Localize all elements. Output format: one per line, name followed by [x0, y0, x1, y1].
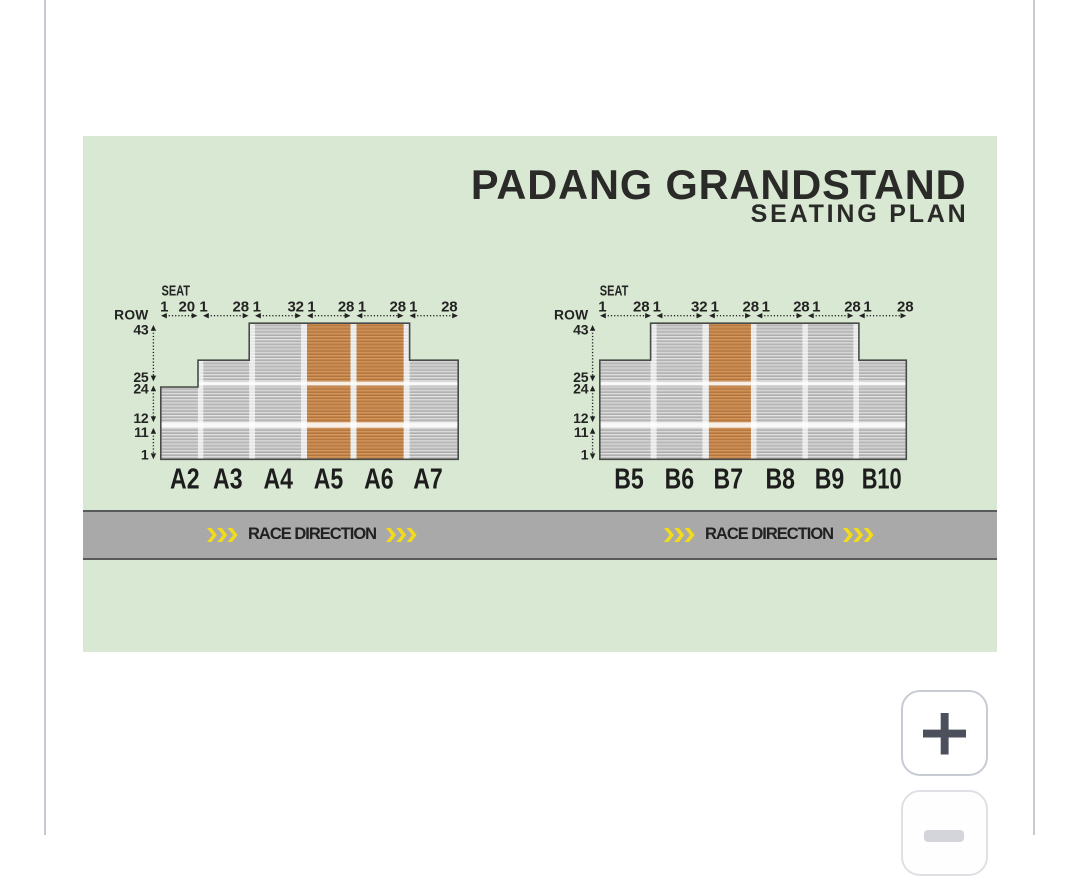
svg-text:A3: A3: [213, 463, 243, 495]
svg-text:1: 1: [863, 299, 871, 316]
svg-text:24: 24: [133, 381, 149, 397]
svg-text:B5: B5: [614, 463, 644, 495]
svg-text:1: 1: [358, 299, 366, 316]
svg-text:32: 32: [691, 299, 707, 316]
svg-text:ROW: ROW: [554, 308, 589, 323]
svg-text:20: 20: [179, 299, 195, 316]
svg-text:B7: B7: [714, 463, 744, 495]
svg-text:1: 1: [581, 447, 589, 463]
svg-text:43: 43: [573, 321, 589, 337]
svg-text:28: 28: [633, 299, 649, 316]
svg-text:A6: A6: [364, 463, 394, 495]
svg-text:B6: B6: [665, 463, 695, 495]
svg-text:B8: B8: [765, 463, 795, 495]
svg-text:B9: B9: [815, 463, 845, 495]
svg-text:28: 28: [793, 299, 809, 316]
svg-text:1: 1: [762, 299, 770, 316]
svg-text:A7: A7: [413, 463, 443, 495]
svg-text:1: 1: [253, 299, 261, 316]
svg-text:1: 1: [812, 299, 820, 316]
svg-text:1: 1: [711, 299, 719, 316]
svg-text:28: 28: [441, 299, 457, 316]
svg-text:1: 1: [307, 299, 315, 316]
svg-text:24: 24: [573, 381, 589, 397]
svg-text:SEAT: SEAT: [162, 283, 191, 299]
svg-text:28: 28: [743, 299, 759, 316]
svg-text:SEAT: SEAT: [600, 283, 629, 299]
svg-text:ROW: ROW: [114, 308, 149, 323]
svg-text:28: 28: [338, 299, 354, 316]
svg-text:B10: B10: [862, 463, 902, 495]
svg-text:1: 1: [653, 299, 661, 316]
svg-text:43: 43: [133, 321, 149, 337]
svg-text:1: 1: [199, 299, 207, 316]
svg-text:28: 28: [390, 299, 406, 316]
svg-text:A5: A5: [314, 463, 344, 495]
svg-text:32: 32: [287, 299, 303, 316]
svg-text:1: 1: [141, 447, 149, 463]
svg-text:1: 1: [409, 299, 417, 316]
svg-text:A2: A2: [170, 463, 200, 495]
svg-text:A4: A4: [263, 463, 293, 495]
svg-text:1: 1: [598, 299, 606, 316]
svg-text:11: 11: [134, 424, 149, 440]
svg-text:28: 28: [844, 299, 860, 316]
svg-text:11: 11: [574, 424, 589, 440]
svg-text:28: 28: [233, 299, 249, 316]
svg-text:28: 28: [897, 299, 913, 316]
svg-text:1: 1: [160, 299, 168, 316]
